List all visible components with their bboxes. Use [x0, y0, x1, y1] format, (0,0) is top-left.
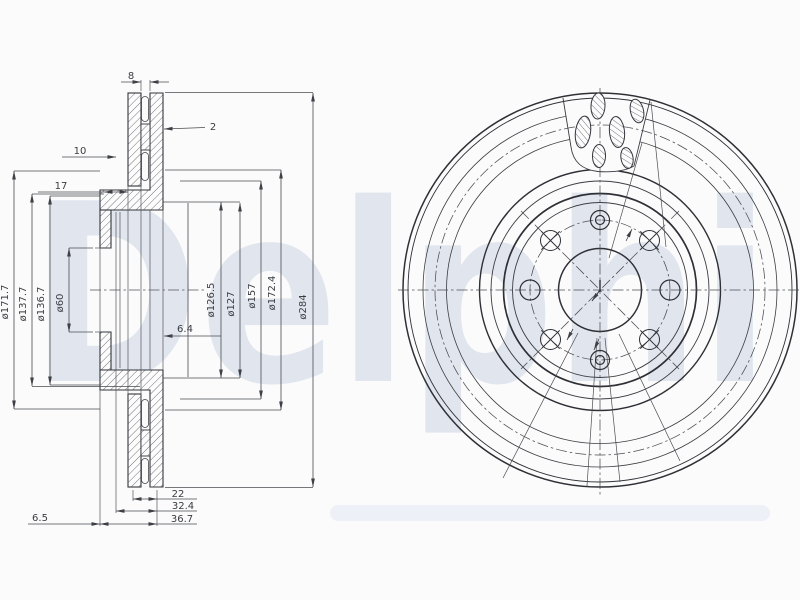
- dim-label-d60: ø60: [55, 294, 66, 313]
- dim-label-d127: ø127: [226, 291, 237, 316]
- hub-face-plate-upper: [100, 210, 111, 248]
- dim-label-6-4: 6.4: [177, 324, 193, 335]
- vent-slot: [142, 459, 149, 484]
- dim-label-d284: ø284: [298, 294, 309, 319]
- vent-vane-lower: [141, 430, 150, 456]
- dim-label-17: 17: [55, 181, 68, 192]
- technical-drawing-page: Delphi: [0, 0, 800, 600]
- dim-label-32-4: 32.4: [172, 501, 194, 512]
- vent-slot: [592, 144, 605, 167]
- dim-label-8: 8: [128, 71, 134, 82]
- dim-label-d136-7: ø136.7: [36, 287, 47, 322]
- dim-label-d171-7: ø171.7: [0, 285, 11, 320]
- hub-face-plate-lower: [100, 332, 111, 370]
- vent-vane-upper: [141, 124, 150, 150]
- dim-label-10: 10: [74, 146, 87, 157]
- dim-label-36-7: 36.7: [171, 514, 193, 525]
- dim-label-6-5: 6.5: [32, 513, 48, 524]
- dim-label-2: 2: [210, 122, 216, 133]
- dim-label-22: 22: [172, 489, 185, 500]
- rotor-left-plate-lower: [128, 394, 141, 487]
- watermark-underline-swoosh: [330, 505, 770, 521]
- dim-label-d172-4: ø172.4: [267, 276, 278, 311]
- brake-disc-drawing: Delphi: [0, 0, 800, 600]
- dim-label-d137-7: ø137.7: [18, 287, 29, 322]
- rotor-left-plate-upper: [128, 93, 141, 186]
- vent-slot: [142, 97, 149, 122]
- dim-label-d157: ø157: [247, 283, 258, 308]
- dim-label-d126-5: ø126.5: [206, 283, 217, 318]
